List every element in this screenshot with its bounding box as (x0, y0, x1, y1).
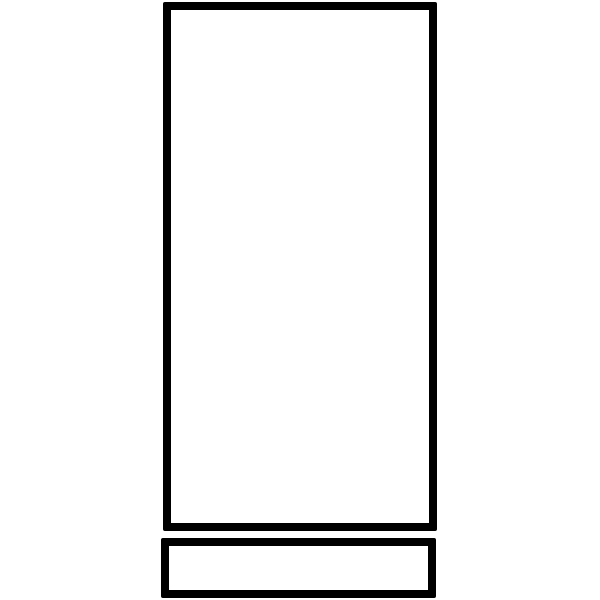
drawing-canvas (0, 0, 600, 600)
base-rectangle-outline (161, 538, 436, 598)
tall-rectangle-outline (163, 2, 437, 531)
